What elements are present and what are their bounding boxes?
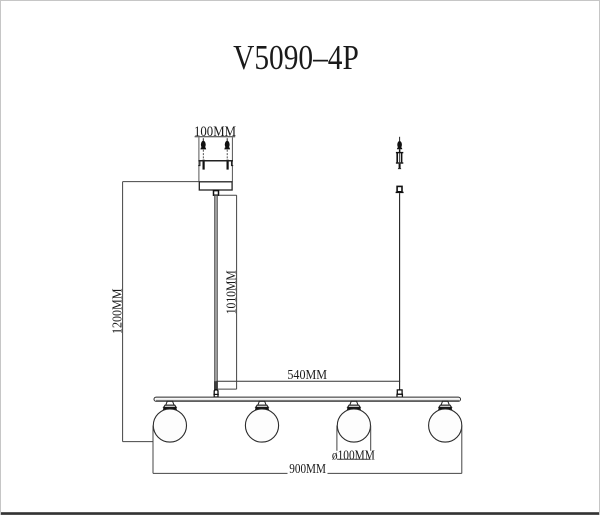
svg-text:540MM: 540MM: [287, 368, 327, 383]
svg-text:100MM: 100MM: [194, 124, 236, 140]
svg-text:ø100MM: ø100MM: [332, 448, 375, 463]
svg-text:1200MM: 1200MM: [111, 288, 126, 334]
svg-text:1010MM: 1010MM: [224, 270, 239, 314]
svg-text:900MM: 900MM: [289, 462, 326, 477]
svg-text:V5090–4P: V5090–4P: [233, 38, 359, 77]
